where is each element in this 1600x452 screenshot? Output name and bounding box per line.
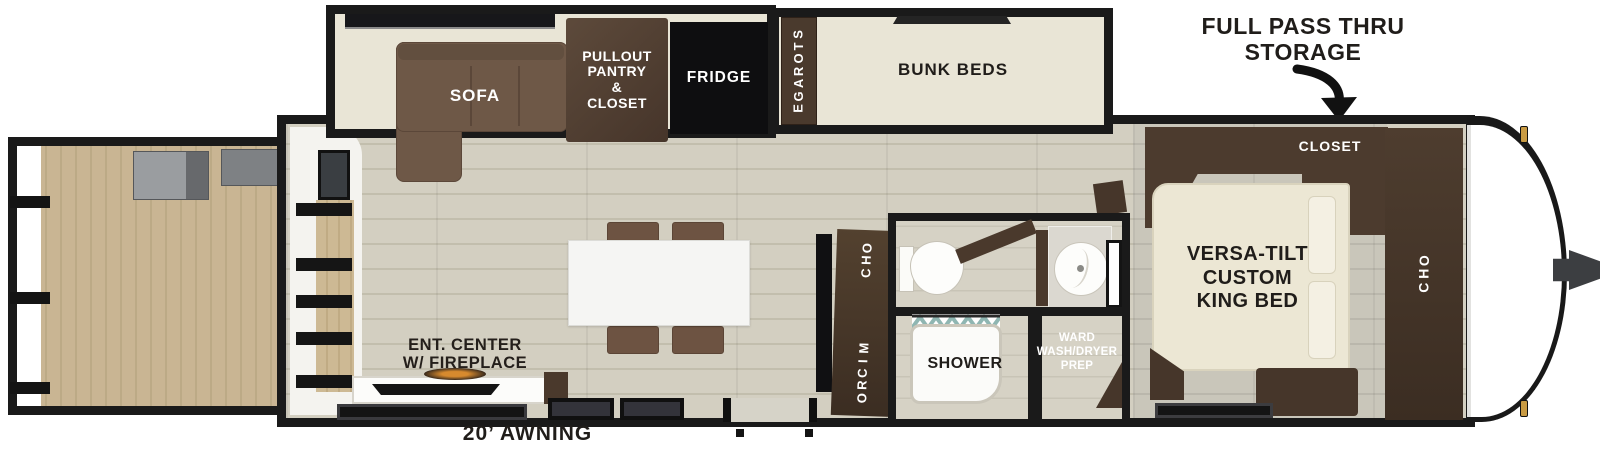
window [620,398,684,420]
tv-icon [372,384,500,395]
entry-door [723,398,817,422]
sink-drain [1077,265,1084,272]
rv-floorplan: FULL PASS THRU STORAGE SOFA PULLOUT PANT… [0,0,1600,452]
marker-light [1520,126,1528,143]
deck-furniture [221,149,281,186]
rear-step-bar [296,203,352,216]
rear-window [318,150,350,200]
deck-rail-gap [17,146,41,406]
slideout-window [345,14,555,29]
king-bed-label: VERSA-TILT CUSTOM KING BED [1150,243,1345,314]
pass-thru-storage-label: FULL PASS THRU STORAGE [1153,14,1453,66]
deck-rail-post [10,382,50,394]
bedroom-window [1155,403,1273,418]
deck-furniture [133,151,209,200]
pullout-pantry-closet: PULLOUT PANTRY & CLOSET [566,18,668,142]
bathroom-window [1106,240,1122,308]
rear-step-bar [296,332,352,345]
sofa-back-cushion [398,44,564,60]
awning-label: 20’ AWNING [400,422,655,446]
sofa-label: SOFA [420,86,530,106]
window [548,398,614,420]
rear-step-bar [296,258,352,271]
rear-step-bar [296,375,352,388]
bunk-window [893,16,1011,24]
deck-rail-post [10,196,50,208]
window [337,404,527,420]
storage-cabinet: STORAGE [781,17,817,125]
fireplace-icon [424,368,486,380]
dining-table [568,240,750,326]
deck-rail-post [10,292,50,304]
kitchen-tv [816,234,832,392]
storage-label: STORAGE [782,18,816,124]
hallway-cabinet [1093,180,1127,216]
fridge-label: FRIDGE [687,69,752,87]
front-cap [1467,116,1567,422]
shower-label: SHOWER [905,355,1025,373]
pass-thru-arrow-icon [1287,64,1377,122]
dining-chair [607,326,659,354]
fridge: FRIDGE [670,22,768,134]
wardrobe-label: WARD WASH/DRYER PREP [1020,332,1134,373]
ohc-front-label: OHC [1385,128,1463,420]
awning-bracket [805,429,813,437]
door-jamb [809,398,817,422]
bunk-beds-label: BUNK BEDS [853,60,1053,80]
marker-light [1520,400,1528,417]
bedroom-overhead-cabinet: OHC [1385,128,1463,420]
pantry-label: PULLOUT PANTRY & CLOSET [582,49,652,112]
micro-label: MICRO [831,341,895,405]
rear-step-bar [296,295,352,308]
door-jamb [723,398,731,422]
awning-bracket [736,429,744,437]
dining-chair [672,326,724,354]
